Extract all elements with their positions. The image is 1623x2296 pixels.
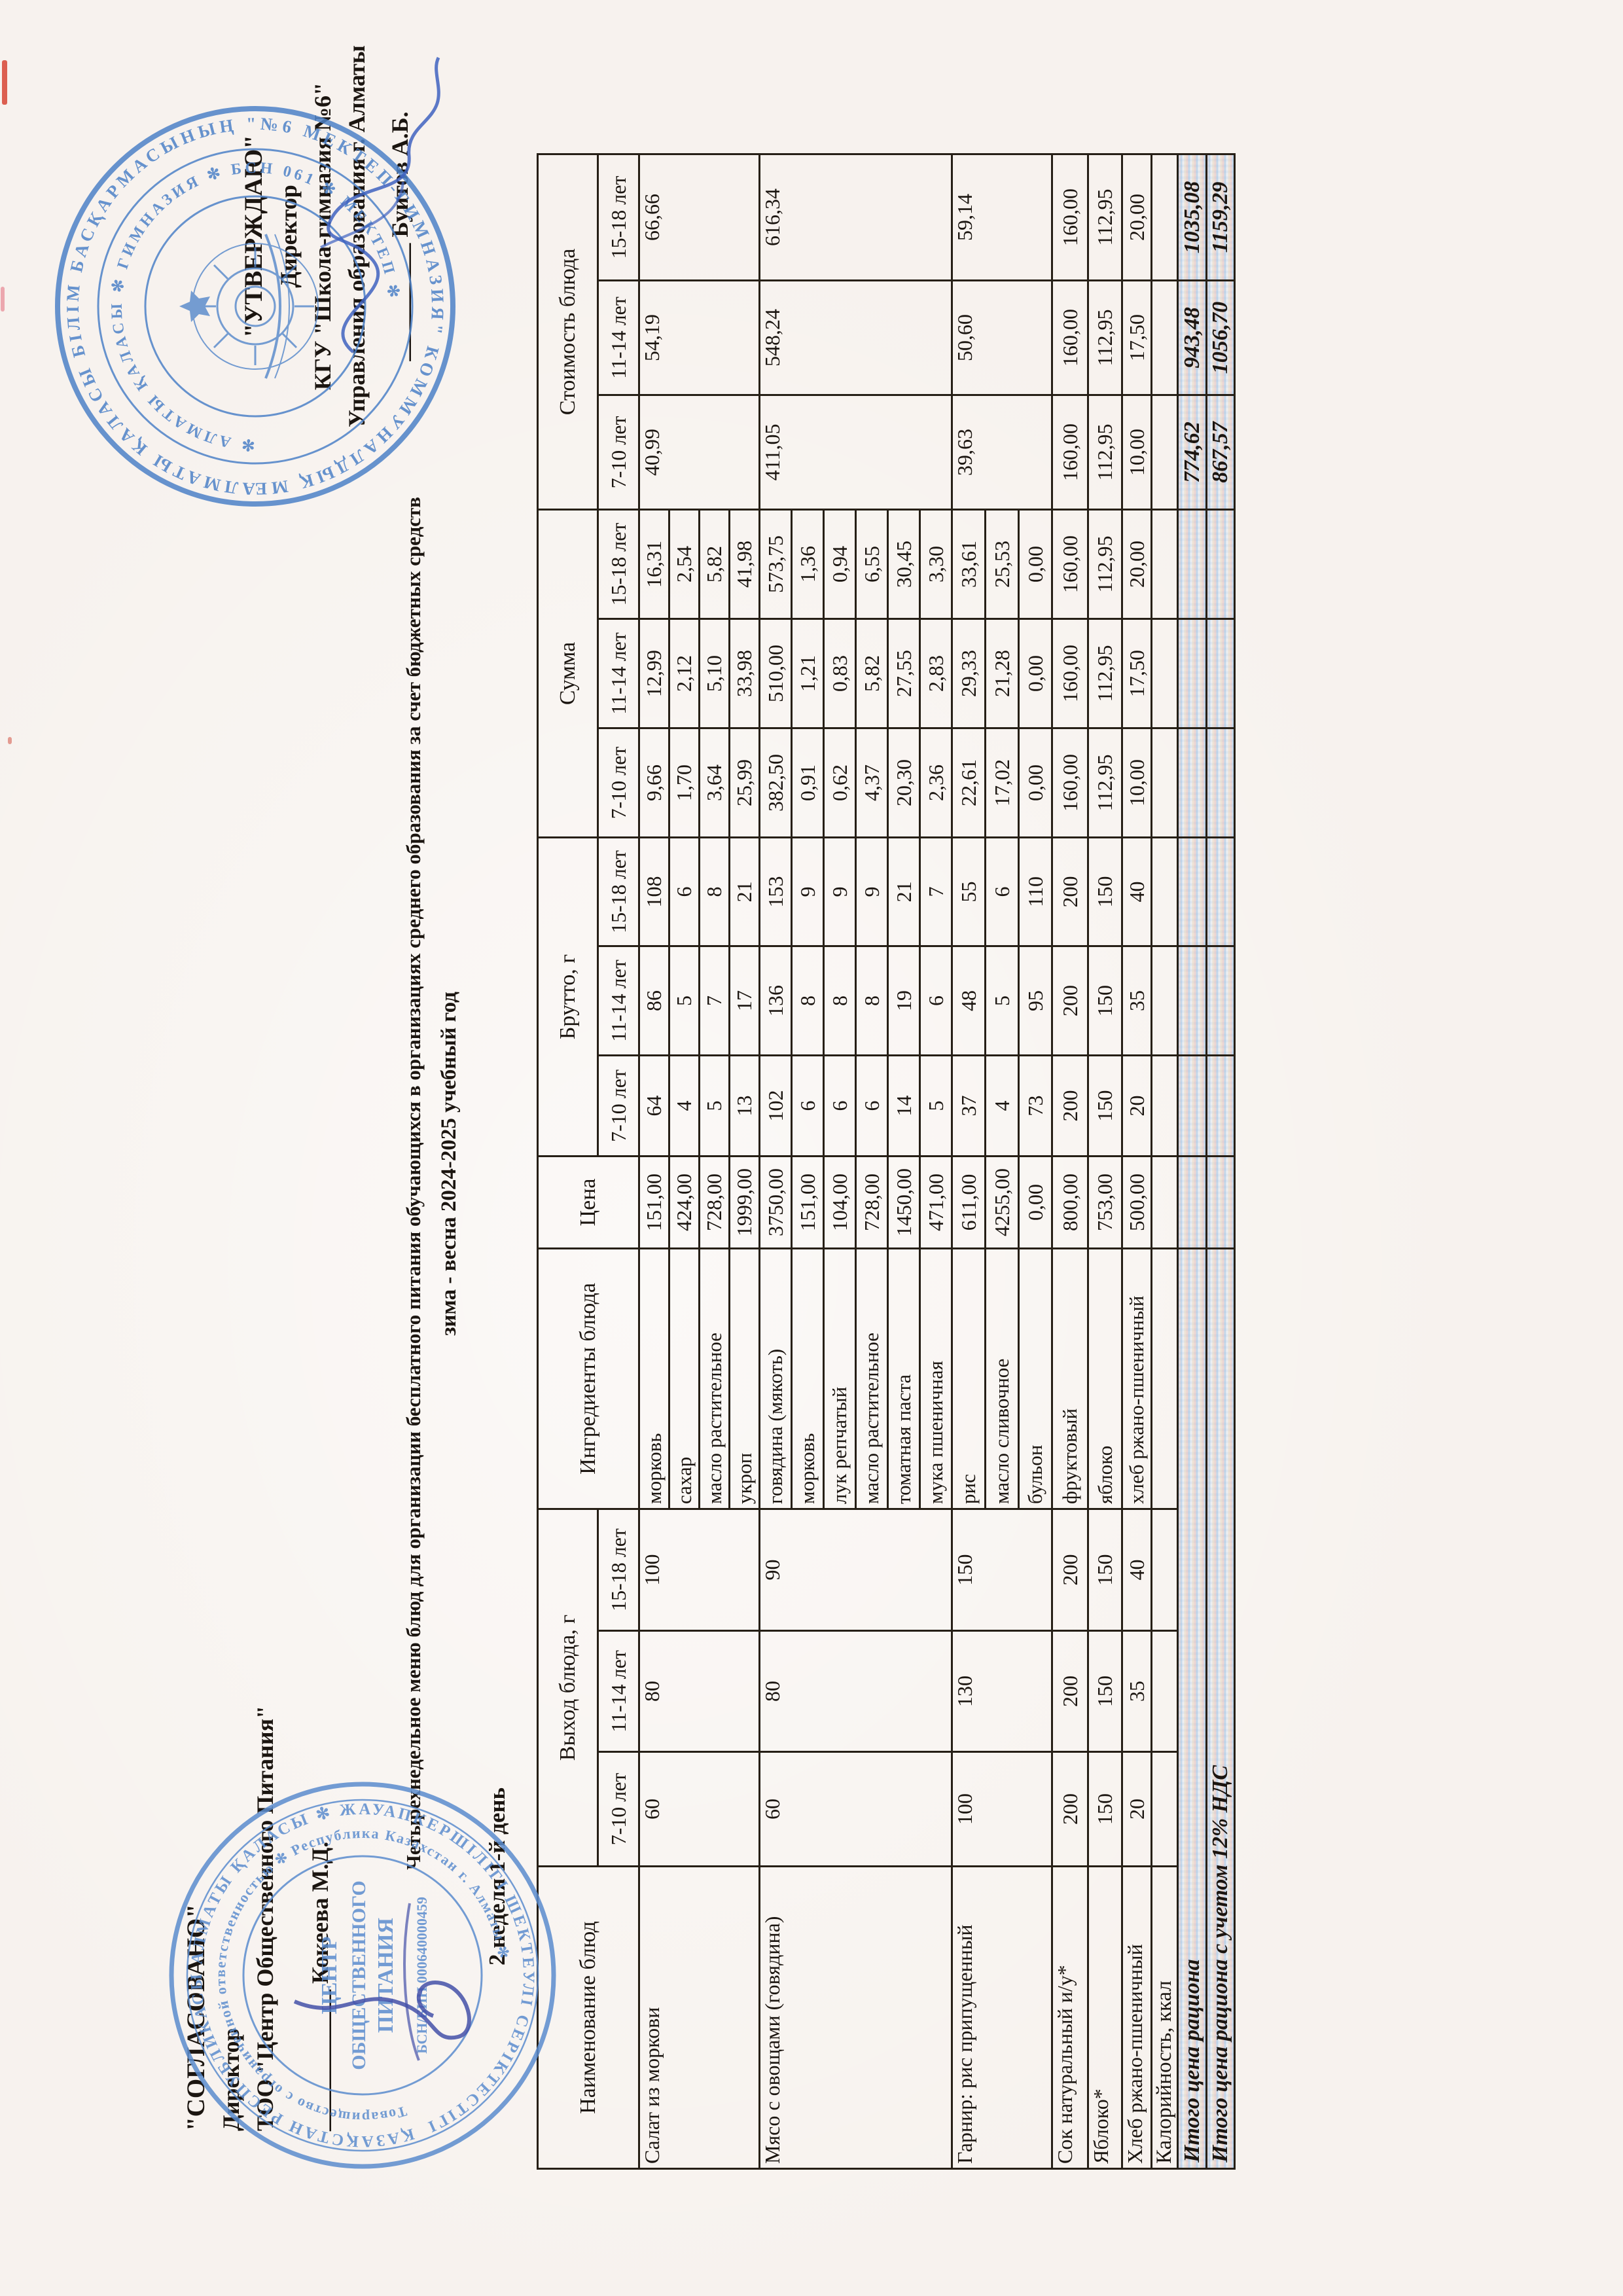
- cell-empty: [1152, 1631, 1178, 1752]
- cell-price: 728,00: [700, 1156, 730, 1248]
- cell-ingredient: морковь: [792, 1248, 824, 1509]
- cell-brutto: 108: [639, 837, 669, 946]
- cell-summa: 5,82: [700, 509, 730, 619]
- age-col-header: 11-14 лет: [598, 619, 639, 728]
- cell-total-value: 774,62: [1178, 395, 1207, 509]
- cell-price: 611,00: [952, 1156, 986, 1248]
- cell-cost: 616,34: [760, 154, 952, 280]
- cell-empty: [1178, 837, 1207, 946]
- cell-ingredient: масло растительное: [856, 1248, 888, 1509]
- agreement-signature: [281, 1877, 497, 2100]
- cell-summa: 1,36: [792, 509, 824, 619]
- cell-summa: 6,55: [856, 509, 888, 619]
- cell-empty: [1207, 1156, 1235, 1248]
- cell-summa: 41,98: [730, 509, 760, 619]
- cell-empty: [1207, 509, 1235, 619]
- cell-cost: 160,00: [1052, 395, 1088, 509]
- cell-cost: 17,50: [1122, 280, 1152, 395]
- col-header-brutto: Брутто, г: [538, 837, 598, 1156]
- cell-summa: 573,75: [760, 509, 792, 619]
- cell-brutto: 19: [888, 946, 920, 1055]
- cell-brutto: 21: [888, 837, 920, 946]
- cell-empty: [1152, 1156, 1178, 1248]
- cell-ingredient: сахар: [669, 1248, 700, 1509]
- cell-empty: [1152, 509, 1178, 619]
- cell-brutto: 8: [700, 837, 730, 946]
- cell-empty: [1152, 837, 1178, 946]
- cell-price: 1450,00: [888, 1156, 920, 1248]
- cell-cost: 160,00: [1052, 280, 1088, 395]
- cell-brutto: 7: [700, 946, 730, 1055]
- cell-brutto: 20: [1122, 1055, 1152, 1156]
- cell-brutto: 150: [1088, 837, 1122, 946]
- cell-empty: [1152, 154, 1178, 280]
- cell-total-label: Итого цена рациона с учетом 12% НДС: [1207, 1248, 1235, 2168]
- cell-out: 60: [639, 1752, 760, 1867]
- document-subtitle: зима - весна 2024-2025 учебный год: [437, 992, 461, 1336]
- age-col-header: 15-18 лет: [598, 154, 639, 280]
- scan-artifact-mark: [1, 287, 5, 312]
- cell-summa: 510,00: [760, 619, 792, 728]
- director-signature: [275, 38, 458, 378]
- cell-summa: 33,98: [730, 619, 760, 728]
- cell-ingredient: укроп: [730, 1248, 760, 1509]
- cell-ingredient: яблоко: [1088, 1248, 1122, 1509]
- cell-empty: [1152, 1055, 1178, 1156]
- cell-summa: 30,45: [888, 509, 920, 619]
- cell-summa: 160,00: [1052, 619, 1088, 728]
- cell-empty: [1178, 1156, 1207, 1248]
- cell-brutto: 8: [792, 946, 824, 1055]
- cell-total-label: Итого цена рациона: [1178, 1248, 1207, 2168]
- cell-ingredient: фруктовый: [1052, 1248, 1088, 1509]
- cell-total-value: 1159,29: [1207, 154, 1235, 280]
- cell-summa: 16,31: [639, 509, 669, 619]
- cell-summa: 25,53: [986, 509, 1019, 619]
- age-col-header: 7-10 лет: [598, 1055, 639, 1156]
- cell-summa: 3,30: [920, 509, 952, 619]
- cell-brutto: 17: [730, 946, 760, 1055]
- cell-out: 90: [760, 1509, 952, 1630]
- cell-summa: 22,61: [952, 728, 986, 837]
- cell-summa: 112,95: [1088, 728, 1122, 837]
- cell-brutto: 86: [639, 946, 669, 1055]
- cell-dish-name: Яблоко*: [1088, 1867, 1122, 2169]
- cell-price: 800,00: [1052, 1156, 1088, 1248]
- cell-price: 500,00: [1122, 1156, 1152, 1248]
- cell-empty: [1152, 280, 1178, 395]
- age-col-header: 7-10 лет: [598, 728, 639, 837]
- cell-brutto: 9: [856, 837, 888, 946]
- cell-summa: 4,37: [856, 728, 888, 837]
- cell-empty: [1178, 946, 1207, 1055]
- cell-price: 3750,00: [760, 1156, 792, 1248]
- cell-cost: 548,24: [760, 280, 952, 395]
- cell-ingredient: рис: [952, 1248, 986, 1509]
- cell-brutto: 6: [920, 946, 952, 1055]
- age-col-header: 7-10 лет: [598, 1752, 639, 1867]
- cell-price: 728,00: [856, 1156, 888, 1248]
- cell-summa: 21,28: [986, 619, 1019, 728]
- cell-cost: 59,14: [952, 154, 1052, 280]
- cell-cost: 20,00: [1122, 154, 1152, 280]
- cell-cost: 112,95: [1088, 280, 1122, 395]
- col-header-price: Цена: [538, 1156, 639, 1248]
- cell-summa: 382,50: [760, 728, 792, 837]
- cell-summa: 0,00: [1019, 619, 1052, 728]
- cell-summa: 3,64: [700, 728, 730, 837]
- age-col-header: 11-14 лет: [598, 946, 639, 1055]
- cell-brutto: 14: [888, 1055, 920, 1156]
- cell-out: 200: [1052, 1509, 1088, 1630]
- cell-empty: [1178, 728, 1207, 837]
- age-col-header: 15-18 лет: [598, 509, 639, 619]
- cell-brutto: 13: [730, 1055, 760, 1156]
- cell-brutto: 8: [824, 946, 856, 1055]
- cell-total-value: 1035,08: [1178, 154, 1207, 280]
- cell-dish-name: Гарнир: рис припущенный: [952, 1867, 1052, 2169]
- cell-ingredient: говядина (мякоть): [760, 1248, 792, 1509]
- cell-brutto: 6: [856, 1055, 888, 1156]
- document-landscape-content: "СОГЛАСОВАНО" Директор ТОО "Центр Общест…: [0, 0, 1623, 2296]
- age-col-header: 15-18 лет: [598, 837, 639, 946]
- cell-price: 471,00: [920, 1156, 952, 1248]
- cell-cost: 66,66: [639, 154, 760, 280]
- cell-dish-name: Хлеб ржано-пшеничный: [1122, 1867, 1152, 2169]
- cell-brutto: 7: [920, 837, 952, 946]
- cell-summa: 10,00: [1122, 728, 1152, 837]
- cell-ingredient: томатная паста: [888, 1248, 920, 1509]
- scan-artifact-mark: [2, 60, 7, 105]
- cell-dish-name: Сок натуральный и/у*: [1052, 1867, 1088, 2169]
- col-header-cost: Стоимость блюда: [538, 154, 598, 509]
- cell-ingredient: бульон: [1019, 1248, 1052, 1509]
- cell-empty: [1207, 619, 1235, 728]
- cell-brutto: 4: [669, 1055, 700, 1156]
- cell-cost: 39,63: [952, 395, 1052, 509]
- cell-price: 0,00: [1019, 1156, 1052, 1248]
- cell-cost: 112,95: [1088, 154, 1122, 280]
- cell-brutto: 200: [1052, 1055, 1088, 1156]
- cell-total-value: 867,57: [1207, 395, 1235, 509]
- cell-brutto: 9: [824, 837, 856, 946]
- cell-brutto: 21: [730, 837, 760, 946]
- cell-brutto: 153: [760, 837, 792, 946]
- cell-brutto: 48: [952, 946, 986, 1055]
- cell-calories-label: Калорийность, ккал: [1152, 1867, 1178, 2169]
- cell-out: 100: [639, 1509, 760, 1630]
- cell-empty: [1178, 509, 1207, 619]
- cell-out: 150: [1088, 1631, 1122, 1752]
- cell-out: 40: [1122, 1509, 1152, 1630]
- cell-brutto: 5: [669, 946, 700, 1055]
- cell-out: 80: [760, 1631, 952, 1752]
- cell-summa: 0,94: [824, 509, 856, 619]
- cell-price: 151,00: [639, 1156, 669, 1248]
- cell-summa: 5,82: [856, 619, 888, 728]
- cell-ingredient: мука пшеничная: [920, 1248, 952, 1509]
- cell-brutto: 200: [1052, 946, 1088, 1055]
- cell-price: 4255,00: [986, 1156, 1019, 1248]
- cell-ingredient: хлеб ржано-пшеничный: [1122, 1248, 1152, 1509]
- cell-brutto: 6: [792, 1055, 824, 1156]
- cell-ingredient: масло сливочное: [986, 1248, 1019, 1509]
- cell-brutto: 102: [760, 1055, 792, 1156]
- cell-out: 150: [1088, 1509, 1122, 1630]
- cell-summa: 160,00: [1052, 509, 1088, 619]
- cell-ingredient: масло растительное: [700, 1248, 730, 1509]
- cell-summa: 17,02: [986, 728, 1019, 837]
- cell-summa: 29,33: [952, 619, 986, 728]
- cell-summa: 27,55: [888, 619, 920, 728]
- cell-price: 424,00: [669, 1156, 700, 1248]
- cell-ingredient: морковь: [639, 1248, 669, 1509]
- cell-summa: 112,95: [1088, 619, 1122, 728]
- cell-summa: 1,21: [792, 619, 824, 728]
- cell-brutto: 150: [1088, 1055, 1122, 1156]
- cell-summa: 12,99: [639, 619, 669, 728]
- cell-dish-name: Мясо с овощами (говядина): [760, 1867, 952, 2169]
- cell-brutto: 35: [1122, 946, 1152, 1055]
- cell-out: 150: [1088, 1752, 1122, 1867]
- cell-brutto: 40: [1122, 837, 1152, 946]
- age-col-header: 7-10 лет: [598, 395, 639, 509]
- menu-table: Наименование блюд Выход блюда, г Ингреди…: [537, 153, 1236, 2170]
- scan-artifact-mark: [8, 737, 12, 744]
- cell-summa: 25,99: [730, 728, 760, 837]
- cell-out: 200: [1052, 1631, 1088, 1752]
- cell-cost: 160,00: [1052, 154, 1088, 280]
- cell-out: 100: [952, 1752, 1052, 1867]
- cell-price: 1999,00: [730, 1156, 760, 1248]
- cell-summa: 0,83: [824, 619, 856, 728]
- cell-total-value: 1056,70: [1207, 280, 1235, 395]
- cell-price: 151,00: [792, 1156, 824, 1248]
- cell-brutto: 6: [986, 837, 1019, 946]
- cell-ingredient: лук репчатый: [824, 1248, 856, 1509]
- cell-brutto: 200: [1052, 837, 1088, 946]
- cell-empty: [1152, 1248, 1178, 1509]
- cell-summa: 2,54: [669, 509, 700, 619]
- cell-summa: 17,50: [1122, 619, 1152, 728]
- cell-summa: 2,36: [920, 728, 952, 837]
- cell-brutto: 4: [986, 1055, 1019, 1156]
- cell-empty: [1152, 1509, 1178, 1630]
- cell-empty: [1152, 946, 1178, 1055]
- cell-out: 20: [1122, 1752, 1152, 1867]
- cell-summa: 33,61: [952, 509, 986, 619]
- cell-brutto: 73: [1019, 1055, 1052, 1156]
- cell-cost: 50,60: [952, 280, 1052, 395]
- cell-brutto: 5: [920, 1055, 952, 1156]
- cell-out: 35: [1122, 1631, 1152, 1752]
- cell-dish-name: Салат из моркови: [639, 1867, 760, 2169]
- cell-out: 60: [760, 1752, 952, 1867]
- cell-brutto: 110: [1019, 837, 1052, 946]
- cell-cost: 112,95: [1088, 395, 1122, 509]
- cell-brutto: 55: [952, 837, 986, 946]
- cell-empty: [1152, 1752, 1178, 1867]
- cell-brutto: 8: [856, 946, 888, 1055]
- cell-brutto: 6: [824, 1055, 856, 1156]
- scanned-page: "СОГЛАСОВАНО" Директор ТОО "Центр Общест…: [0, 0, 1623, 2296]
- col-header-ingredients: Ингредиенты блюда: [538, 1248, 639, 1509]
- cell-out: 150: [952, 1509, 1052, 1630]
- cell-price: 753,00: [1088, 1156, 1122, 1248]
- cell-out: 80: [639, 1631, 760, 1752]
- col-header-summa: Сумма: [538, 509, 598, 837]
- cell-brutto: 136: [760, 946, 792, 1055]
- cell-summa: 2,12: [669, 619, 700, 728]
- age-col-header: 15-18 лет: [598, 1509, 639, 1630]
- age-col-header: 11-14 лет: [598, 280, 639, 395]
- cell-out: 130: [952, 1631, 1052, 1752]
- cell-summa: 0,62: [824, 728, 856, 837]
- cell-empty: [1207, 1055, 1235, 1156]
- cell-empty: [1178, 619, 1207, 728]
- cell-out: 200: [1052, 1752, 1088, 1867]
- cell-brutto: 150: [1088, 946, 1122, 1055]
- cell-total-value: 943,48: [1178, 280, 1207, 395]
- cell-brutto: 5: [986, 946, 1019, 1055]
- cell-brutto: 6: [669, 837, 700, 946]
- cell-empty: [1178, 1055, 1207, 1156]
- cell-cost: 10,00: [1122, 395, 1152, 509]
- cell-price: 104,00: [824, 1156, 856, 1248]
- cell-cost: 411,05: [760, 395, 952, 509]
- cell-summa: 2,83: [920, 619, 952, 728]
- cell-summa: 20,30: [888, 728, 920, 837]
- cell-summa: 112,95: [1088, 509, 1122, 619]
- cell-empty: [1207, 946, 1235, 1055]
- cell-brutto: 9: [792, 837, 824, 946]
- cell-summa: 0,00: [1019, 728, 1052, 837]
- document-title: Четырехнедельное меню блюд для организац…: [402, 497, 425, 1870]
- cell-brutto: 37: [952, 1055, 986, 1156]
- cell-summa: 160,00: [1052, 728, 1088, 837]
- cell-empty: [1207, 728, 1235, 837]
- cell-summa: 5,10: [700, 619, 730, 728]
- cell-empty: [1152, 728, 1178, 837]
- cell-brutto: 64: [639, 1055, 669, 1156]
- cell-summa: 9,66: [639, 728, 669, 837]
- cell-summa: 1,70: [669, 728, 700, 837]
- cell-summa: 20,00: [1122, 509, 1152, 619]
- cell-summa: 0,00: [1019, 509, 1052, 619]
- cell-empty: [1152, 619, 1178, 728]
- cell-empty: [1152, 395, 1178, 509]
- cell-cost: 54,19: [639, 280, 760, 395]
- cell-brutto: 5: [700, 1055, 730, 1156]
- cell-empty: [1207, 837, 1235, 946]
- age-col-header: 11-14 лет: [598, 1631, 639, 1752]
- cell-brutto: 95: [1019, 946, 1052, 1055]
- cell-summa: 0,91: [792, 728, 824, 837]
- cell-cost: 40,99: [639, 395, 760, 509]
